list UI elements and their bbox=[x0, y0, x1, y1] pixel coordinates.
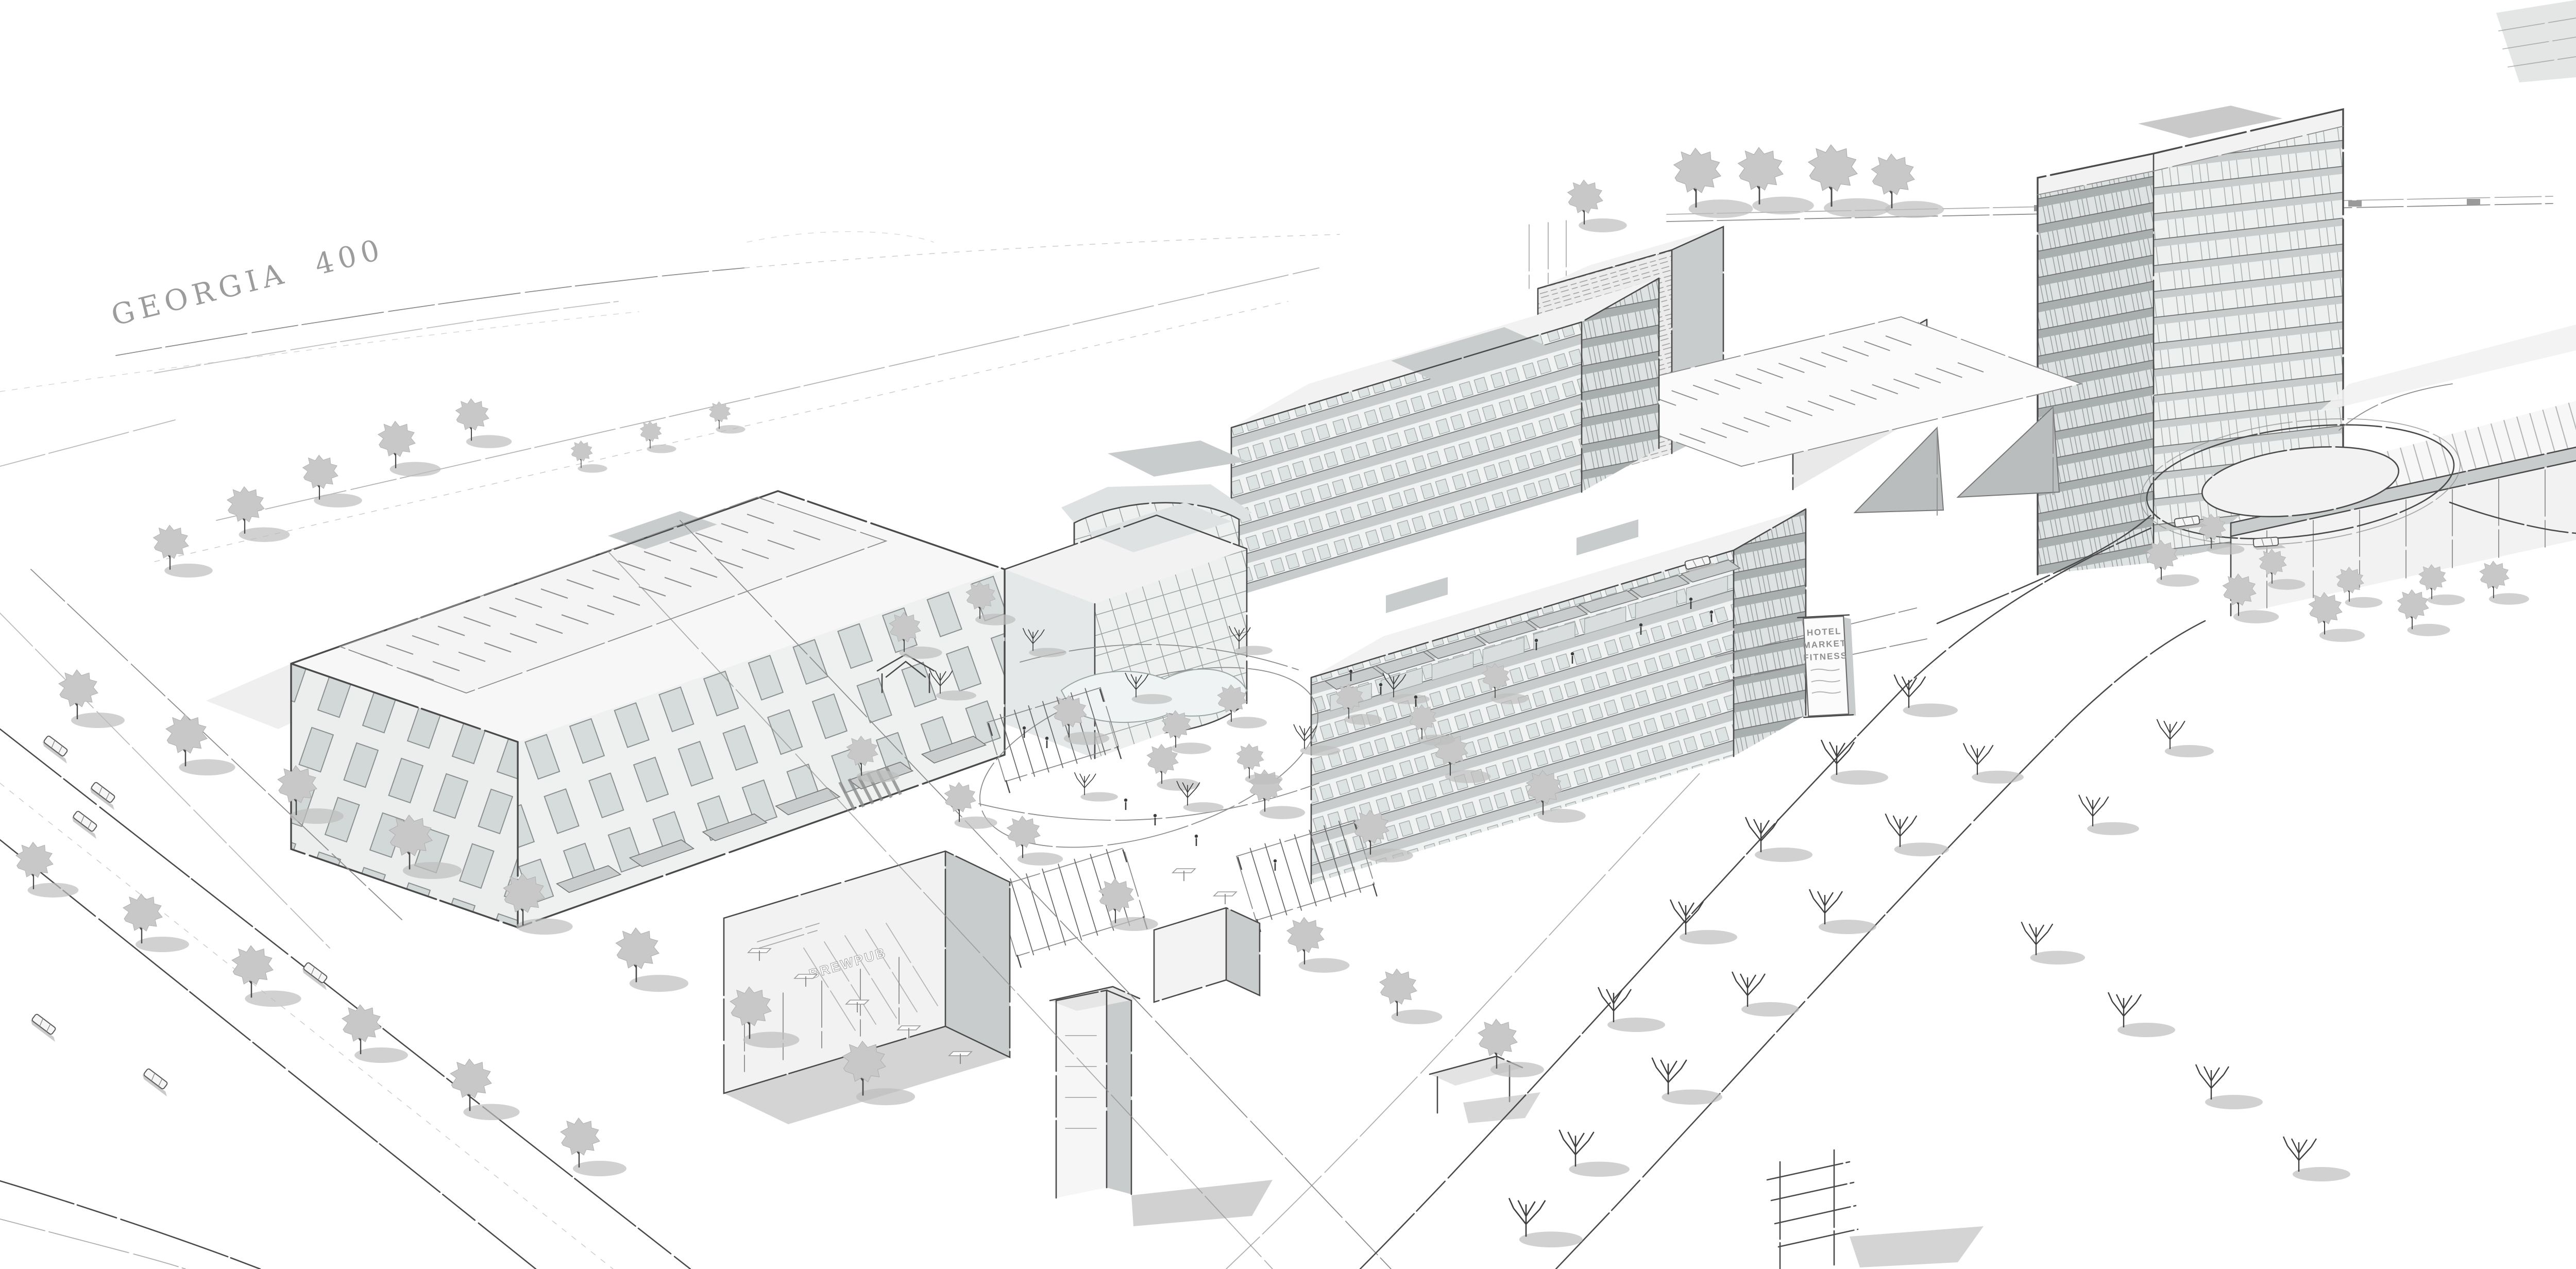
architectural-sketch-canvas: GEORGIA 400 bbox=[0, 0, 2576, 1269]
sketch-page: GEORGIA 400 bbox=[0, 0, 2576, 1269]
sign-line-hotel: HOTEL bbox=[1806, 626, 1842, 638]
